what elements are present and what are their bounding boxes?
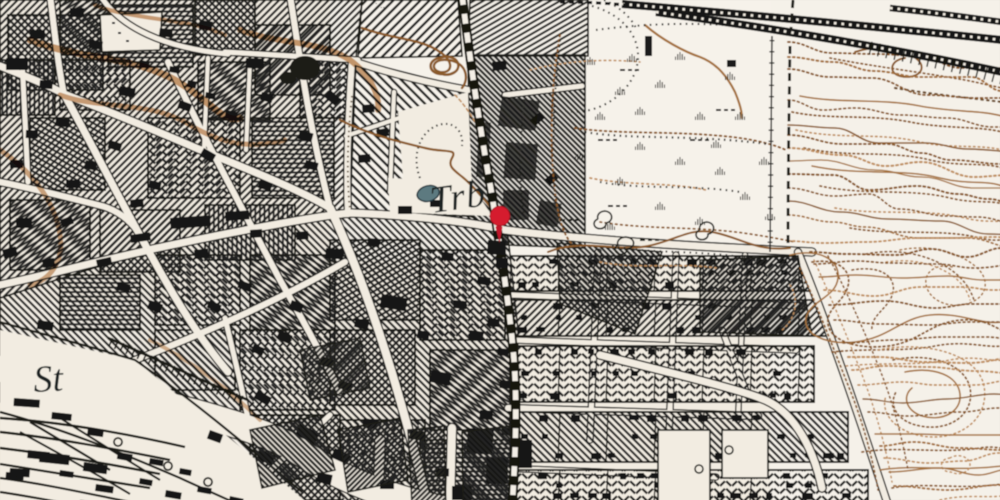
svg-text:..... .: ..... .: [12, 5, 26, 12]
svg-text:.. ...: .. ...: [55, 11, 67, 18]
svg-text:St: St: [32, 357, 65, 401]
svg-text:Trb: Trb: [427, 173, 488, 222]
svg-text:: :..: : :..: [375, 0, 388, 10]
